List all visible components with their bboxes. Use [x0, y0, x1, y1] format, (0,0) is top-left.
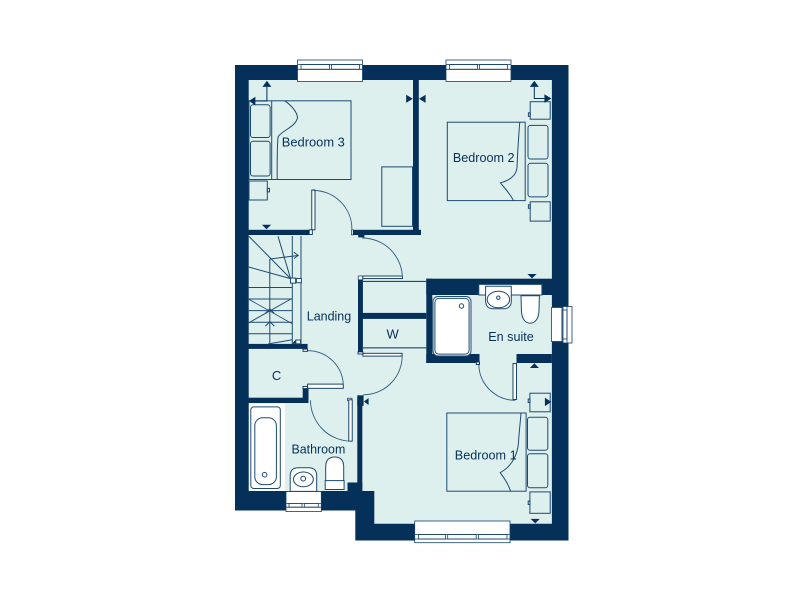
svg-text:Bedroom 2: Bedroom 2 [453, 150, 515, 165]
svg-text:Bedroom 1: Bedroom 1 [455, 447, 517, 462]
svg-text:Bathroom: Bathroom [292, 442, 346, 457]
svg-text:Landing: Landing [307, 308, 351, 323]
svg-text:En suite: En suite [488, 329, 534, 344]
svg-text:C: C [272, 368, 281, 383]
svg-text:Bedroom 3: Bedroom 3 [282, 135, 345, 150]
svg-text:W: W [386, 326, 399, 341]
